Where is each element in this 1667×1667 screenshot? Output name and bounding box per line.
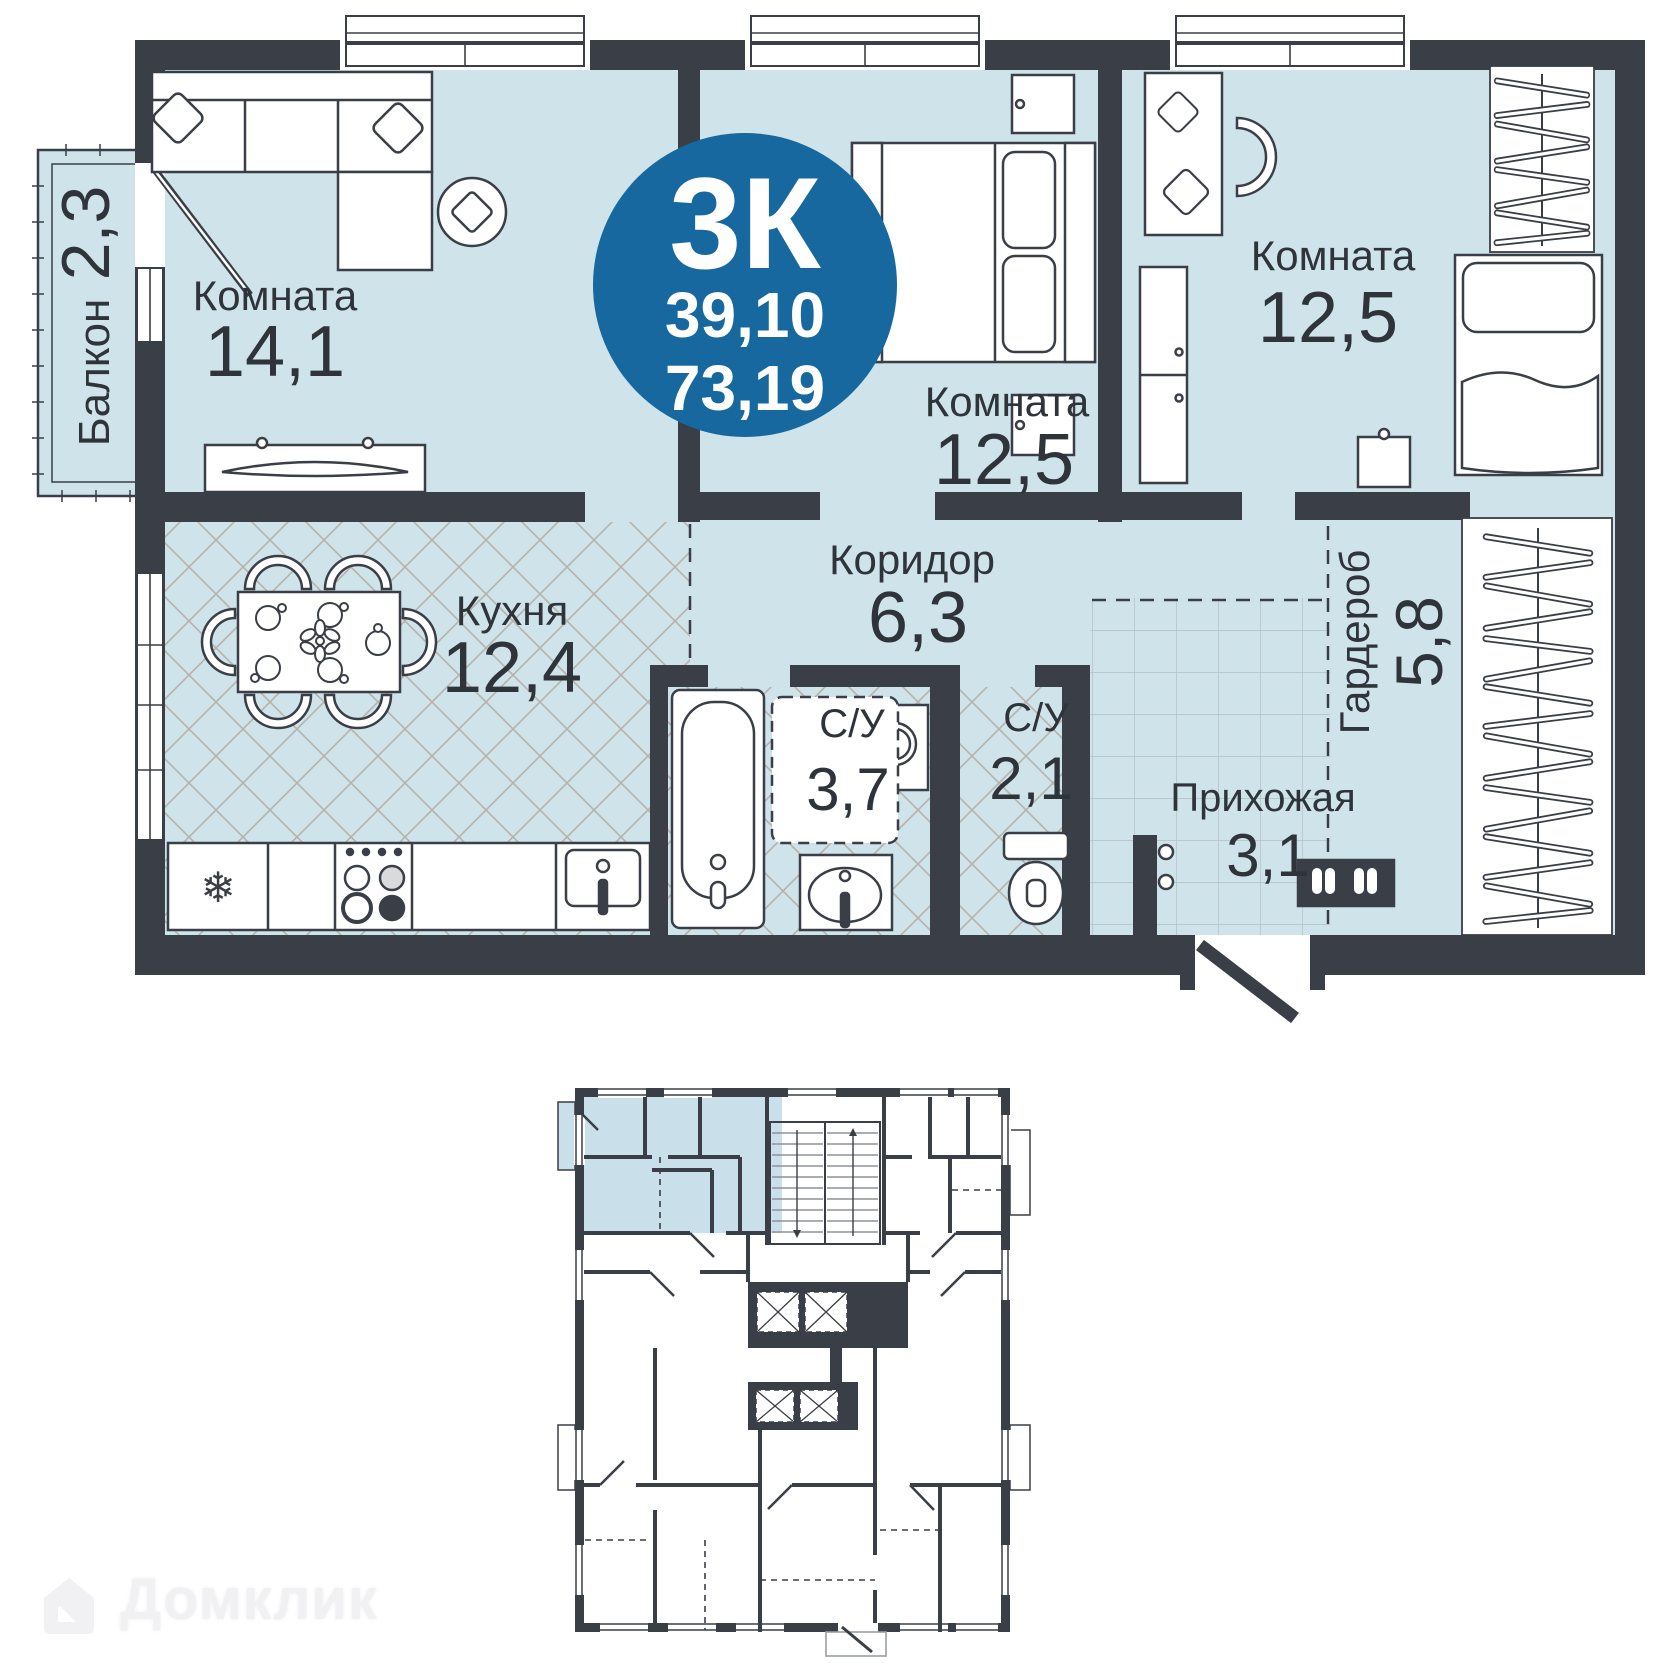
bathtub <box>672 690 764 928</box>
clothes-rail-large <box>1462 518 1612 935</box>
room-toilet-name: С/У <box>1003 698 1068 738</box>
floorplan-screenshot: ❄ <box>0 0 1667 1667</box>
badge-living-area: 39,10 <box>593 283 897 347</box>
fridge-snowflake-icon: ❄ <box>200 863 235 912</box>
highlighted-apartment <box>584 1097 782 1233</box>
pouf <box>438 178 506 246</box>
badge-total-area: 73,19 <box>593 356 897 420</box>
bath-sink <box>800 855 892 930</box>
stairwell <box>770 1122 880 1244</box>
watermark: Домклик <box>36 1566 378 1633</box>
kitchen-sink <box>566 850 640 914</box>
room-corridor-area: 6,3 <box>868 582 968 654</box>
room-wardrobe-area: 5,8 <box>1386 550 1452 735</box>
room-bathroom-area: 3,7 <box>806 760 889 820</box>
room-living-area: 14,1 <box>205 316 345 388</box>
shoe-rack <box>1298 860 1394 906</box>
room-bedroom-right-name: Комната <box>1251 235 1415 277</box>
room-balcony-area: 2,3 <box>48 186 124 281</box>
room-kitchen-name: Кухня <box>456 590 568 632</box>
room-hallway-name: Прихожая <box>1170 778 1355 818</box>
elevator-core <box>748 1282 908 1430</box>
room-kitchen-area: 12,4 <box>442 632 582 704</box>
single-bed <box>1455 255 1602 475</box>
room-bedroom-middle-area: 12,5 <box>934 424 1074 496</box>
watermark-brand: Домклик <box>120 1566 378 1633</box>
toilet <box>1004 833 1068 924</box>
apartment-type-badge: 3К 39,10 73,19 <box>593 133 897 437</box>
building-floor-overview <box>558 1087 1030 1656</box>
clothes-rail-small <box>1490 66 1594 252</box>
room-wardrobe-name: Гардероб <box>1334 550 1376 735</box>
room-bedroom-middle-name: Комната <box>925 381 1089 423</box>
nightstand-knob-icon <box>1016 100 1024 108</box>
room-balcony-name: Балкон <box>70 299 119 447</box>
badge-room-count: 3К <box>593 158 897 288</box>
room-bathroom-name: С/У <box>819 704 884 744</box>
room-toilet-area: 2,1 <box>989 749 1072 809</box>
cabinet <box>1140 267 1187 483</box>
tv-stand <box>205 438 425 492</box>
room-balcony-label: Балкон 2,3 <box>52 186 120 447</box>
plant-pot <box>1358 429 1410 487</box>
room-corridor-name: Коридор <box>829 539 995 581</box>
room-hallway-area: 3,1 <box>1226 826 1309 886</box>
room-bedroom-right-area: 12,5 <box>1258 282 1398 354</box>
room-living-name: Комната <box>193 275 357 317</box>
room-wardrobe-label: Гардероб 5,8 <box>1334 550 1452 735</box>
